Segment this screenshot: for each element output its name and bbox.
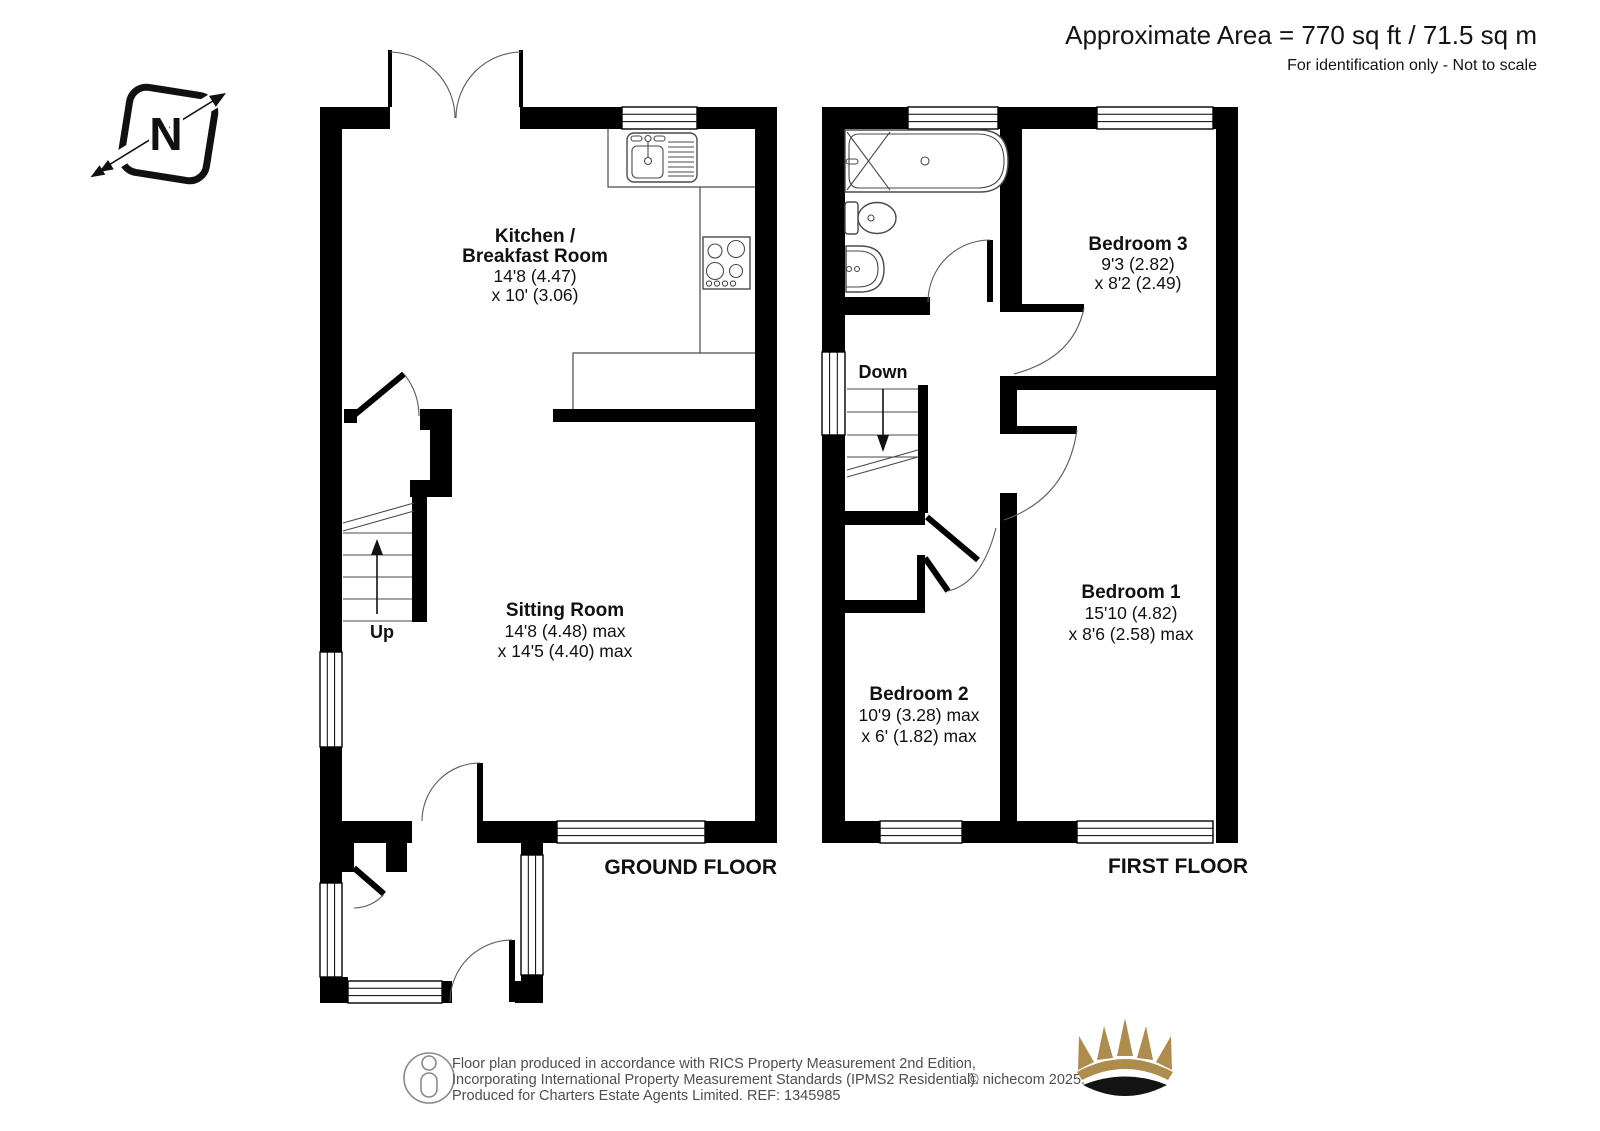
header: Approximate Area = 770 sq ft / 71.5 sq m… (1065, 20, 1537, 74)
person-icon (404, 1053, 454, 1103)
kitchen-label-line1: Kitchen / (495, 226, 576, 247)
first-floor-labels: Bedroom 3 9'3 (2.82) x 8'2 (2.49) Bedroo… (858, 234, 1248, 878)
french-doors (388, 50, 523, 118)
kitchen-hob-icon (703, 237, 750, 289)
footer: Floor plan produced in accordance with R… (404, 1018, 1173, 1104)
bedroom3-dim-line1: 9'3 (2.82) (1101, 254, 1174, 274)
bathroom-window (908, 107, 998, 129)
toilet-icon (845, 202, 896, 234)
sitting-room-label: Sitting Room (506, 600, 624, 621)
sitting-room-front-window (557, 821, 705, 843)
kitchen-sink-icon (627, 133, 697, 182)
kitchen-label-line2: Breakfast Room (462, 246, 608, 267)
nichecom-credit: © nichecom 2025. (968, 1072, 1085, 1088)
bathroom-door (928, 240, 993, 302)
bath-icon (845, 130, 1008, 192)
compass-north-label: N (149, 108, 182, 160)
stairs-down-label: Down (859, 362, 908, 382)
footer-line1: Floor plan produced in accordance with R… (452, 1056, 976, 1072)
basin-icon (846, 246, 884, 292)
kitchen-dim-line1: 14'8 (4.47) (493, 266, 576, 286)
front-door (450, 940, 515, 1002)
bedroom3-label: Bedroom 3 (1088, 234, 1187, 255)
bathroom-fixtures (845, 130, 1008, 292)
bedroom3-dim-line2: x 8'2 (2.49) (1095, 273, 1182, 293)
landing-window (822, 352, 845, 435)
bedroom2-window (880, 821, 962, 843)
sitting-room-dim-line1: 14'8 (4.48) max (504, 621, 625, 641)
floor-plan-canvas: Approximate Area = 770 sq ft / 71.5 sq m… (0, 0, 1600, 1131)
bedroom2-door (925, 517, 996, 591)
bedroom2-label: Bedroom 2 (869, 684, 968, 705)
approximate-area-text: Approximate Area = 770 sq ft / 71.5 sq m (1065, 20, 1537, 50)
sitting-room-side-window (320, 652, 342, 747)
porch-side-window-left (320, 883, 342, 977)
kitchen-window (622, 107, 697, 129)
hall-cupboard-door (354, 868, 384, 908)
bedroom1-dim-line1: 15'10 (4.82) (1085, 603, 1178, 623)
bedroom2-dim-line1: 10'9 (3.28) max (858, 705, 979, 725)
bedroom1-window (1077, 821, 1213, 843)
ground-floor-title: GROUND FLOOR (604, 856, 777, 879)
bedroom3-door (1014, 304, 1084, 374)
footer-line3: Produced for Charters Estate Agents Limi… (452, 1088, 841, 1104)
ground-floor-labels: Kitchen / Breakfast Room 14'8 (4.47) x 1… (370, 226, 777, 879)
north-compass: N (91, 85, 232, 183)
ground-floor-stairs (343, 503, 414, 621)
identification-note-text: For identification only - Not to scale (1287, 57, 1537, 74)
kitchen-hall-door (352, 374, 419, 417)
ground-floor-doors (352, 50, 523, 1002)
stairs-up-label: Up (370, 622, 394, 642)
first-floor-stairs (847, 389, 918, 477)
bedroom2-dim-line2: x 6' (1.82) max (861, 726, 976, 746)
bedroom3-window (1097, 107, 1213, 129)
footer-line2: Incorporating International Property Mea… (452, 1072, 979, 1088)
porch-side-window-right (521, 855, 543, 975)
bedroom1-label: Bedroom 1 (1081, 582, 1181, 603)
up-arrowhead (371, 539, 383, 555)
first-floor-title: FIRST FLOOR (1108, 855, 1248, 878)
kitchen-dim-line2: x 10' (3.06) (492, 285, 579, 305)
down-arrowhead (877, 435, 889, 452)
charters-crown-logo (1077, 1018, 1173, 1096)
floorplan-page: Approximate Area = 770 sq ft / 71.5 sq m… (0, 0, 1600, 1131)
bedroom1-dim-line2: x 8'6 (2.58) max (1069, 624, 1194, 644)
sitting-room-door (422, 763, 483, 821)
sitting-room-dim-line2: x 14'5 (4.40) max (498, 641, 633, 661)
porch-front-window (348, 981, 442, 1003)
